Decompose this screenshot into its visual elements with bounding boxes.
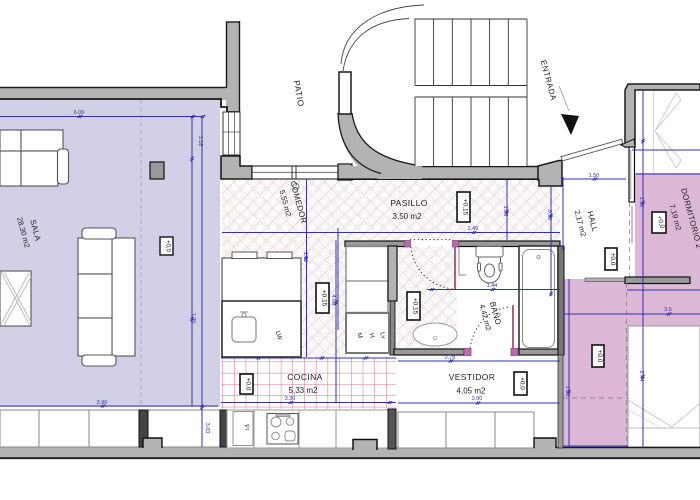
svg-text:1.60: 1.60 (564, 386, 570, 397)
svg-text:PASILLO: PASILLO (390, 198, 428, 208)
svg-text:2.49: 2.49 (468, 226, 479, 232)
svg-text:3.30: 3.30 (285, 396, 296, 402)
svg-text:2.44: 2.44 (638, 371, 644, 382)
svg-text:1.05: 1.05 (502, 206, 508, 217)
svg-text:2.78: 2.78 (445, 355, 456, 361)
svg-text:+0,0: +0,0 (165, 240, 171, 253)
svg-text:3.5: 3.5 (664, 307, 672, 313)
svg-text:COCINA: COCINA (287, 372, 322, 382)
svg-text:1.18: 1.18 (197, 136, 203, 147)
svg-text:1.08: 1.08 (302, 252, 308, 263)
svg-text:+0,0: +0,0 (609, 253, 616, 266)
svg-text:+0,15: +0,15 (462, 199, 469, 216)
svg-text:4.66: 4.66 (330, 295, 336, 306)
svg-text:6.06: 6.06 (74, 110, 85, 116)
svg-text:+0,0: +0,0 (245, 378, 252, 391)
svg-text:3.03: 3.03 (204, 423, 210, 434)
svg-text:+0,15: +0,15 (412, 298, 419, 315)
svg-text:3,50 m2: 3,50 m2 (393, 212, 422, 221)
svg-text:3.00: 3.00 (472, 396, 483, 402)
svg-text:0.90: 0.90 (546, 210, 552, 221)
svg-text:5,33 m2: 5,33 m2 (289, 386, 318, 395)
svg-text:4,05 m2: 4,05 m2 (457, 387, 486, 396)
svg-text:+0,15: +0,15 (321, 290, 328, 307)
svg-text:1.44: 1.44 (487, 283, 498, 289)
svg-text:+0,0: +0,0 (519, 377, 526, 390)
svg-text:3.96: 3.96 (97, 400, 108, 406)
svg-text:1.26: 1.26 (190, 313, 196, 324)
svg-text:1.30: 1.30 (638, 197, 644, 208)
svg-text:1.50: 1.50 (589, 173, 600, 179)
svg-text:+0,0: +0,0 (596, 350, 603, 363)
svg-text:VESTIDOR: VESTIDOR (449, 372, 496, 382)
